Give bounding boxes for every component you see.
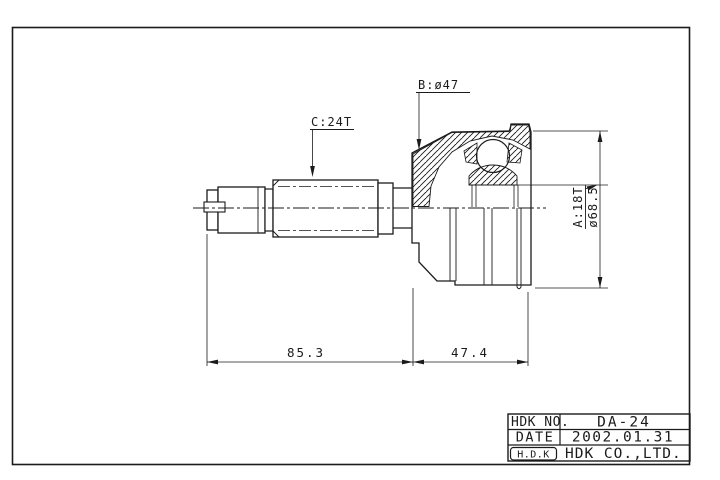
- spline-shaft: [273, 180, 378, 237]
- dimension-value-joint: 47.4: [451, 345, 489, 360]
- drawing-sheet: 85.3 47.4 A:18T ø68.5 B:ø47 C:24T: [0, 0, 720, 480]
- title-row-label-hdk-no: HDK NO.: [511, 415, 569, 430]
- arrowhead-left: [207, 360, 218, 365]
- arrowhead-right: [402, 360, 413, 365]
- title-row-value-date: 2002.01.31: [572, 430, 674, 446]
- title-row-label-date: DATE: [516, 430, 555, 446]
- shaft-collar: [378, 183, 393, 234]
- title-row-value-company: HDK CO.,LTD.: [565, 446, 682, 462]
- dimension-joint-length: 47.4: [413, 292, 528, 366]
- cotter-pin-slot: [204, 202, 225, 212]
- arrowhead-bottom: [598, 277, 603, 288]
- hdk-logo-text: H.D.K: [517, 450, 550, 461]
- frame-border: [13, 28, 690, 465]
- arrowhead-right: [517, 360, 528, 365]
- arrowhead-left: [413, 360, 424, 365]
- engineering-drawing: 85.3 47.4 A:18T ø68.5 B:ø47 C:24T: [0, 0, 720, 480]
- callout-c-label: C:24T: [311, 115, 352, 129]
- dimension-value-shaft: 85.3: [287, 345, 325, 360]
- callout-c: C:24T: [310, 115, 354, 177]
- cv-joint-view: [193, 124, 608, 289]
- dimension-shaft-length: 85.3: [207, 234, 413, 366]
- title-block: HDK NO. DA-24 DATE 2002.01.31 H.D.K HDK …: [508, 414, 690, 462]
- diameter-value: ø68.5: [586, 186, 600, 227]
- callout-b-label: B:ø47: [418, 78, 459, 92]
- callout-c-arrowhead: [310, 166, 315, 177]
- shaft-ring-groove: [265, 189, 273, 231]
- title-row-value-drawing-no: DA-24: [597, 415, 651, 431]
- callout-a-label: A:18T: [571, 186, 585, 227]
- dimension-joint-diameter: A:18T ø68.5: [533, 131, 608, 288]
- arrowhead-top: [598, 131, 603, 142]
